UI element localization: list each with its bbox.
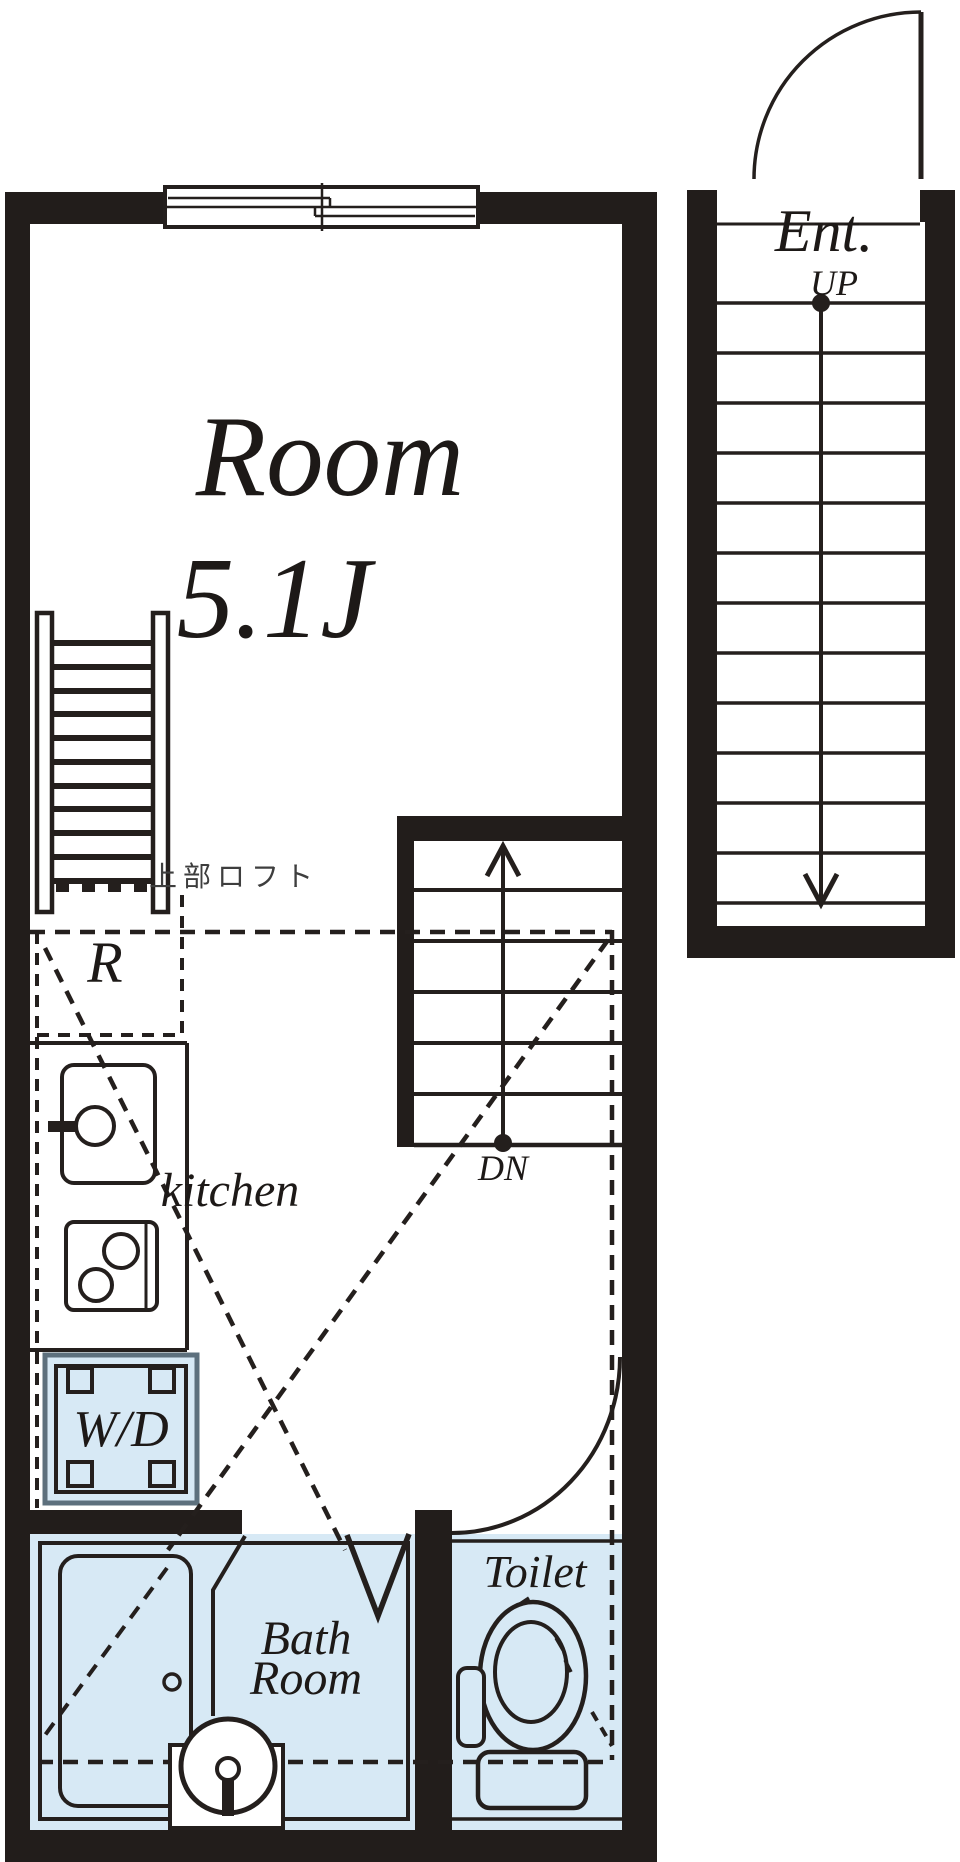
floor-plan: Room 5.1J 上部ロフト R kitchen DN W/D Bath Ro… <box>0 0 960 1862</box>
loft-ladder <box>37 613 168 912</box>
entrance-stairs <box>717 224 925 904</box>
entrance-door <box>754 12 921 179</box>
stove <box>66 1222 157 1310</box>
floor-plan-linework <box>0 0 960 1862</box>
window <box>165 183 478 231</box>
internal-stairs <box>414 846 622 1152</box>
toilet-door-arc <box>452 1357 620 1533</box>
refrigerator-outline <box>37 895 182 1035</box>
washer-dryer <box>45 1355 197 1503</box>
kitchen-counter <box>30 1043 187 1350</box>
